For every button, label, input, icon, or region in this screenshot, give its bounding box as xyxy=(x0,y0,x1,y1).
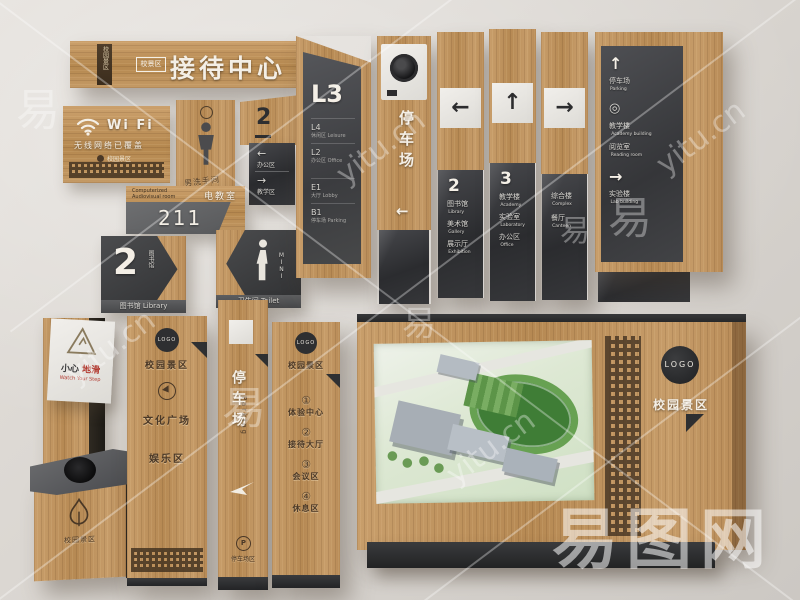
room-number: 211 xyxy=(158,206,202,230)
post-item: 图书馆Library xyxy=(447,200,472,216)
arrow-icon xyxy=(228,478,256,500)
room-en-text: Computerized Audiovisual room xyxy=(132,188,175,200)
arrow-up-icon: ↑ xyxy=(492,83,533,123)
post-item-en: Office xyxy=(500,242,525,248)
l3-floor-row: E1 大厅 Lobby xyxy=(311,178,355,203)
campus-map-sign: LOGO 校园景区 xyxy=(357,314,746,566)
post-items: 图书馆Library 美术馆Gallery 展示厅Exhibition xyxy=(447,200,472,256)
fret-pattern xyxy=(69,162,164,178)
post-glass: 综合楼Complex 餐厅Canteen xyxy=(542,174,587,300)
l3-floor-row: L2 办公区 Office xyxy=(311,143,355,168)
parking-letter: P xyxy=(237,537,250,550)
post-number: 3 xyxy=(500,169,512,189)
wifi-sign: Wi Fi 无线网络已覆盖 校园景区 xyxy=(63,106,170,183)
warning-triangle-icon xyxy=(65,325,99,361)
map-base xyxy=(367,542,715,568)
parking-circle-icon: P xyxy=(236,536,251,551)
totem-directory: LOGO 校园景区 ① 体验中心 ② 接待大厅 ③ 会议区 ④ 休息区 xyxy=(272,322,340,588)
flag-panel: ← 办公区 → 教学区 xyxy=(249,143,295,205)
logo-text: LOGO xyxy=(295,332,317,354)
directory-item: 阅览室Reading room xyxy=(609,143,644,159)
totem-directory-label: 接待大厅 xyxy=(288,439,324,450)
totem-directory-list: ① 体验中心 ② 接待大厅 ③ 会议区 ④ 休息区 xyxy=(272,388,340,514)
post-item-cn: 办公区 xyxy=(499,233,526,242)
directory-item-en: Reading room xyxy=(611,152,642,158)
totem-name: 校园景区 xyxy=(127,358,207,371)
reception-side-label: 校园景区 xyxy=(101,46,109,70)
post-item-cn: 实验室 xyxy=(499,213,526,222)
l3-floor-row: L4 休闲区 Leisure xyxy=(311,118,355,143)
camera-post-glass xyxy=(379,230,429,304)
post-items: 综合楼Complex 餐厅Canteen xyxy=(551,192,573,230)
trash-emblem-icon xyxy=(64,496,94,536)
totem-name: 校园景区 xyxy=(272,360,340,371)
post-item: 办公区Office xyxy=(499,233,526,249)
totem-directory-item: ② 接待大厅 xyxy=(288,426,324,450)
post-item-en: Complex xyxy=(552,201,572,207)
arrow-left-icon: ← xyxy=(257,147,266,160)
wifi-title: Wi Fi xyxy=(107,118,154,133)
toilet-side-label: MINI xyxy=(278,252,285,280)
totem-directory-label: 会议区 xyxy=(293,471,320,482)
male-toilet-sign: 男洗手间 xyxy=(176,100,235,196)
flag-right-label: 教学区 xyxy=(257,187,275,196)
l3-floor-code: L2 xyxy=(311,148,355,157)
post-items: 教学楼Academy 实验室Laboratory 办公区Office xyxy=(499,193,526,249)
circled-number-icon: ① xyxy=(301,394,311,407)
post-item-en: Laboratory xyxy=(500,222,525,228)
totem-base xyxy=(272,575,340,588)
arrow-right-icon: → xyxy=(257,174,266,187)
directory-item-cn: 阅览室 xyxy=(609,143,644,152)
fret-pattern xyxy=(131,548,203,572)
room-cn-label: 电教室 xyxy=(204,189,237,202)
totem-parking-sub: 停车场区 xyxy=(218,554,268,563)
library-sign: 2 图书馆 图书馆 Library xyxy=(101,236,186,313)
totem-item-2: 娱乐区 xyxy=(127,450,207,465)
post-item-cn: 综合楼 xyxy=(551,192,573,201)
room-211-sign: Computerized Audiovisual room 电教室 211 xyxy=(126,186,245,234)
directory-panel: ↑ 停车场Parking ◎ 教学楼Academy building 阅览室Re… xyxy=(601,46,683,262)
logo-badge: LOGO xyxy=(295,332,317,354)
arrow-badge: → xyxy=(544,88,585,128)
badge-icon xyxy=(200,106,213,119)
reception-title: 接待中心 xyxy=(170,49,286,85)
l3-floor-desc: 办公区 Office xyxy=(311,157,355,164)
watermark-char: 易 xyxy=(16,74,60,138)
arrow-left-icon: ← xyxy=(396,202,409,220)
arrow-badge: ← xyxy=(440,88,481,128)
map-sign-name: 校园景区 xyxy=(647,396,715,413)
post-item: 展示厅Exhibition xyxy=(447,240,472,256)
totem-parking-en: Parking xyxy=(240,396,248,436)
trash-label: 校园景区 xyxy=(34,533,126,548)
reception-badge: 校景区 xyxy=(136,57,166,72)
l3-floor-row: B1 停车场 Parking xyxy=(311,203,355,228)
post-item: 教学楼Academy xyxy=(499,193,526,209)
logo-text: LOGO xyxy=(155,328,179,352)
post-item-en: Canteen xyxy=(552,223,572,229)
totem-directory-label: 体验中心 xyxy=(288,407,324,418)
post-number: 2 xyxy=(448,176,460,196)
totem-base xyxy=(218,577,268,590)
wifi-subtitle: 无线网络已覆盖 xyxy=(74,140,144,151)
totem-directory-label: 休息区 xyxy=(293,503,320,514)
l3-panel: L3 L4 休闲区 Leisure L2 办公区 Office E1 大厅 Lo… xyxy=(303,52,361,264)
l3-floor-code: E1 xyxy=(311,183,355,192)
room-en-line2: Audiovisual room xyxy=(132,194,175,200)
l3-floor-desc: 大厅 Lobby xyxy=(311,192,355,199)
arrow-right-icon: → xyxy=(544,88,585,128)
corner-triangle xyxy=(686,414,704,432)
big-directory-sign: ↑ 停车场Parking ◎ 教学楼Academy building 阅览室Re… xyxy=(595,32,723,302)
directory-item-en: Lab building xyxy=(611,199,639,205)
reception-side-strip: 校园景区 xyxy=(97,44,112,85)
campus-aerial-image xyxy=(374,340,595,504)
circle-arrow-icon xyxy=(158,382,176,400)
corner-triangle xyxy=(191,342,207,358)
camera-detail xyxy=(387,90,397,96)
arrow-post-up: ↑ 3 教学楼Academy 实验室Laboratory 办公区Office xyxy=(489,29,536,301)
signage-render-scene: 校园景区 校景区 接待中心 Wi Fi 无线网络已覆盖 校园景区 男洗手间 2 … xyxy=(0,0,800,600)
totem-directory-item: ① 体验中心 xyxy=(288,394,324,418)
caution-post: 小心 地滑 Watch Your Step xyxy=(43,318,105,468)
wifi-icon xyxy=(76,117,100,140)
person-figure-icon xyxy=(252,238,274,288)
map-side-face xyxy=(732,322,746,550)
totem-campus-zone: LOGO 校园景区 文化广场 娱乐区 xyxy=(127,316,207,586)
directory-item: 教学楼Academy building xyxy=(609,122,654,138)
library-strip-label: 图书馆 Library xyxy=(101,300,186,313)
directory-item: 实验楼Lab building xyxy=(609,190,640,206)
l3-floor-code: L4 xyxy=(311,123,355,132)
corner-triangle xyxy=(326,374,340,388)
flag-number-bar xyxy=(255,135,271,138)
l3-floor-code: B1 xyxy=(311,208,355,217)
arrow-post-left: ← 2 图书馆Library 美术馆Gallery 展示厅Exhibition xyxy=(437,32,484,298)
l3-floor-desc: 休闲区 Leisure xyxy=(311,132,355,139)
post-item-cn: 展示厅 xyxy=(447,240,472,249)
directory-item-en: Academy building xyxy=(611,131,651,137)
post-item-cn: 美术馆 xyxy=(447,220,472,229)
circled-number-icon: ② xyxy=(301,426,311,439)
directory-item-cn: 教学楼 xyxy=(609,122,654,131)
camera-parking-post: 停车场 ← xyxy=(377,36,431,304)
directory-item: 停车场Parking xyxy=(609,77,630,93)
l3-floor-desc: 停车场 Parking xyxy=(311,217,355,224)
arrow-left-icon: ← xyxy=(440,88,481,128)
flag-number: 2 xyxy=(256,105,271,130)
circled-number-icon: ③ xyxy=(301,458,311,471)
post-item-en: Exhibition xyxy=(448,249,470,255)
fret-pattern-vertical xyxy=(605,336,641,536)
camera-icon xyxy=(390,54,418,82)
cutout-square xyxy=(229,320,253,344)
directory-item-en: Parking xyxy=(610,86,629,92)
corner-triangle xyxy=(255,354,268,367)
flag-divider xyxy=(255,171,289,172)
post-item-en: Gallery xyxy=(448,229,470,235)
post-item: 综合楼Complex xyxy=(551,192,573,208)
flag-sign: 2 ← 办公区 → 教学区 xyxy=(240,95,302,207)
camera-device xyxy=(381,44,427,100)
l3-directory-sign: L3 L4 休闲区 Leisure L2 办公区 Office E1 大厅 Lo… xyxy=(296,36,371,278)
caution-word2: 地滑 xyxy=(82,365,101,376)
camera-post-label: 停车场 xyxy=(396,110,417,173)
post-item-en: Academy xyxy=(500,202,525,208)
totem-directory-item: ③ 会议区 xyxy=(293,458,320,482)
library-number: 2 xyxy=(113,242,138,283)
directory-item-cn: 停车场 xyxy=(609,77,630,86)
post-item: 餐厅Canteen xyxy=(551,214,573,230)
post-item-en: Library xyxy=(448,209,470,215)
post-item-cn: 教学楼 xyxy=(499,193,526,202)
l3-floor-list: L4 休闲区 Leisure L2 办公区 Office E1 大厅 Lobby… xyxy=(311,118,355,228)
logo-badge: LOGO xyxy=(661,346,699,384)
totem-directory-item: ④ 休息区 xyxy=(293,490,320,514)
male-figure-icon xyxy=(193,122,219,176)
circle-arrow-inner xyxy=(162,385,172,395)
logo-text: LOGO xyxy=(661,346,699,384)
reception-sign: 校园景区 校景区 接待中心 xyxy=(70,41,296,88)
post-item: 实验室Laboratory xyxy=(499,213,526,229)
arrow-right-icon: → xyxy=(609,167,622,186)
directory-item-cn: 实验楼 xyxy=(609,190,640,199)
flag-left-label: 办公区 xyxy=(257,160,275,169)
arrow-post-right: → 综合楼Complex 餐厅Canteen xyxy=(541,32,588,300)
post-item: 美术馆Gallery xyxy=(447,220,472,236)
post-glass: 3 教学楼Academy 实验室Laboratory 办公区Office xyxy=(490,163,535,301)
flag-wood: 2 xyxy=(240,95,300,145)
wifi-badge-dot-icon xyxy=(97,155,104,162)
caution-word1: 小心 xyxy=(61,364,80,375)
circled-number-icon: ④ xyxy=(301,490,311,503)
arrow-up-icon: ↑ xyxy=(609,54,622,73)
library-strip: 图书馆 Library xyxy=(101,300,186,313)
arrow-badge: ↑ xyxy=(492,83,533,123)
library-side-label: 图书馆 xyxy=(147,250,154,268)
post-item-cn: 图书馆 xyxy=(447,200,472,209)
totem-item-1: 文化广场 xyxy=(127,412,207,427)
directory-rows: ↑ 停车场Parking ◎ 教学楼Academy building 阅览室Re… xyxy=(609,54,669,206)
post-item-cn: 餐厅 xyxy=(551,214,573,223)
logo-badge: LOGO xyxy=(155,328,179,352)
totem-parking: 停车场 Parking P 停车场区 xyxy=(218,300,268,590)
caution-card: 小心 地滑 Watch Your Step xyxy=(47,318,115,403)
toilet-sign: MINI 卫生间 Toilet xyxy=(216,230,301,308)
l3-title: L3 xyxy=(311,80,343,108)
totem-base xyxy=(127,578,207,586)
post-glass: 2 图书馆Library 美术馆Gallery 展示厅Exhibition xyxy=(438,170,483,298)
spiral-icon: ◎ xyxy=(609,101,620,116)
trash-hole xyxy=(64,457,96,483)
